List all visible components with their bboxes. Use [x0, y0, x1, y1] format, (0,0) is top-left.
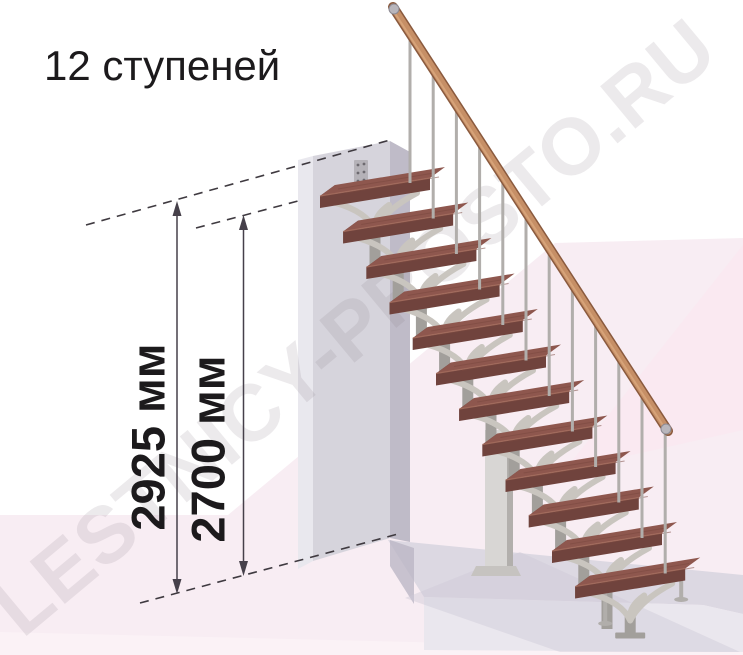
diagram-title: 12 ступеней	[44, 42, 280, 89]
handrail-end-cap	[661, 424, 671, 434]
stair-diagram: LESTNICY-PROSTO.RU	[0, 0, 743, 655]
handrail-top-cap	[389, 4, 399, 14]
dimension-label-2925: 2925 мм	[121, 343, 174, 530]
support-foot-plate	[615, 633, 645, 639]
dimension-label-2700: 2700 мм	[181, 355, 234, 542]
diagram-svg: LESTNICY-PROSTO.RU	[0, 0, 743, 655]
column-base-plate	[471, 566, 521, 576]
front-leg-foot	[598, 621, 612, 626]
side-leg-foot	[674, 597, 688, 602]
